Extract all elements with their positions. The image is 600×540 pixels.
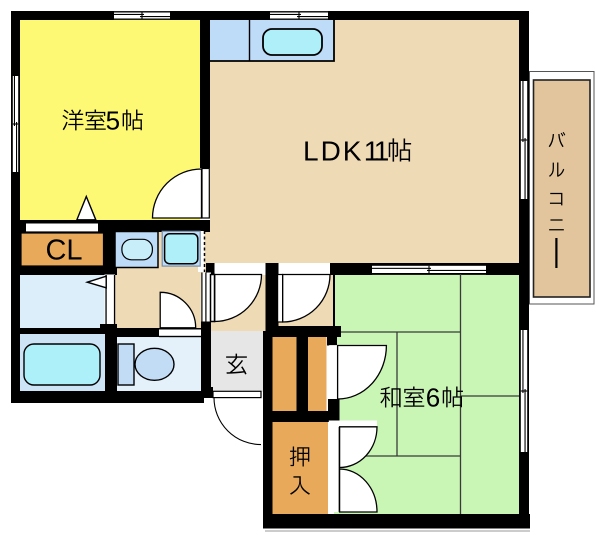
- svg-text:CL: CL: [45, 235, 82, 267]
- svg-text:LDK: LDK: [303, 135, 363, 166]
- svg-text:1: 1: [374, 135, 390, 166]
- svg-text:5: 5: [106, 106, 120, 136]
- svg-text:6: 6: [426, 383, 440, 413]
